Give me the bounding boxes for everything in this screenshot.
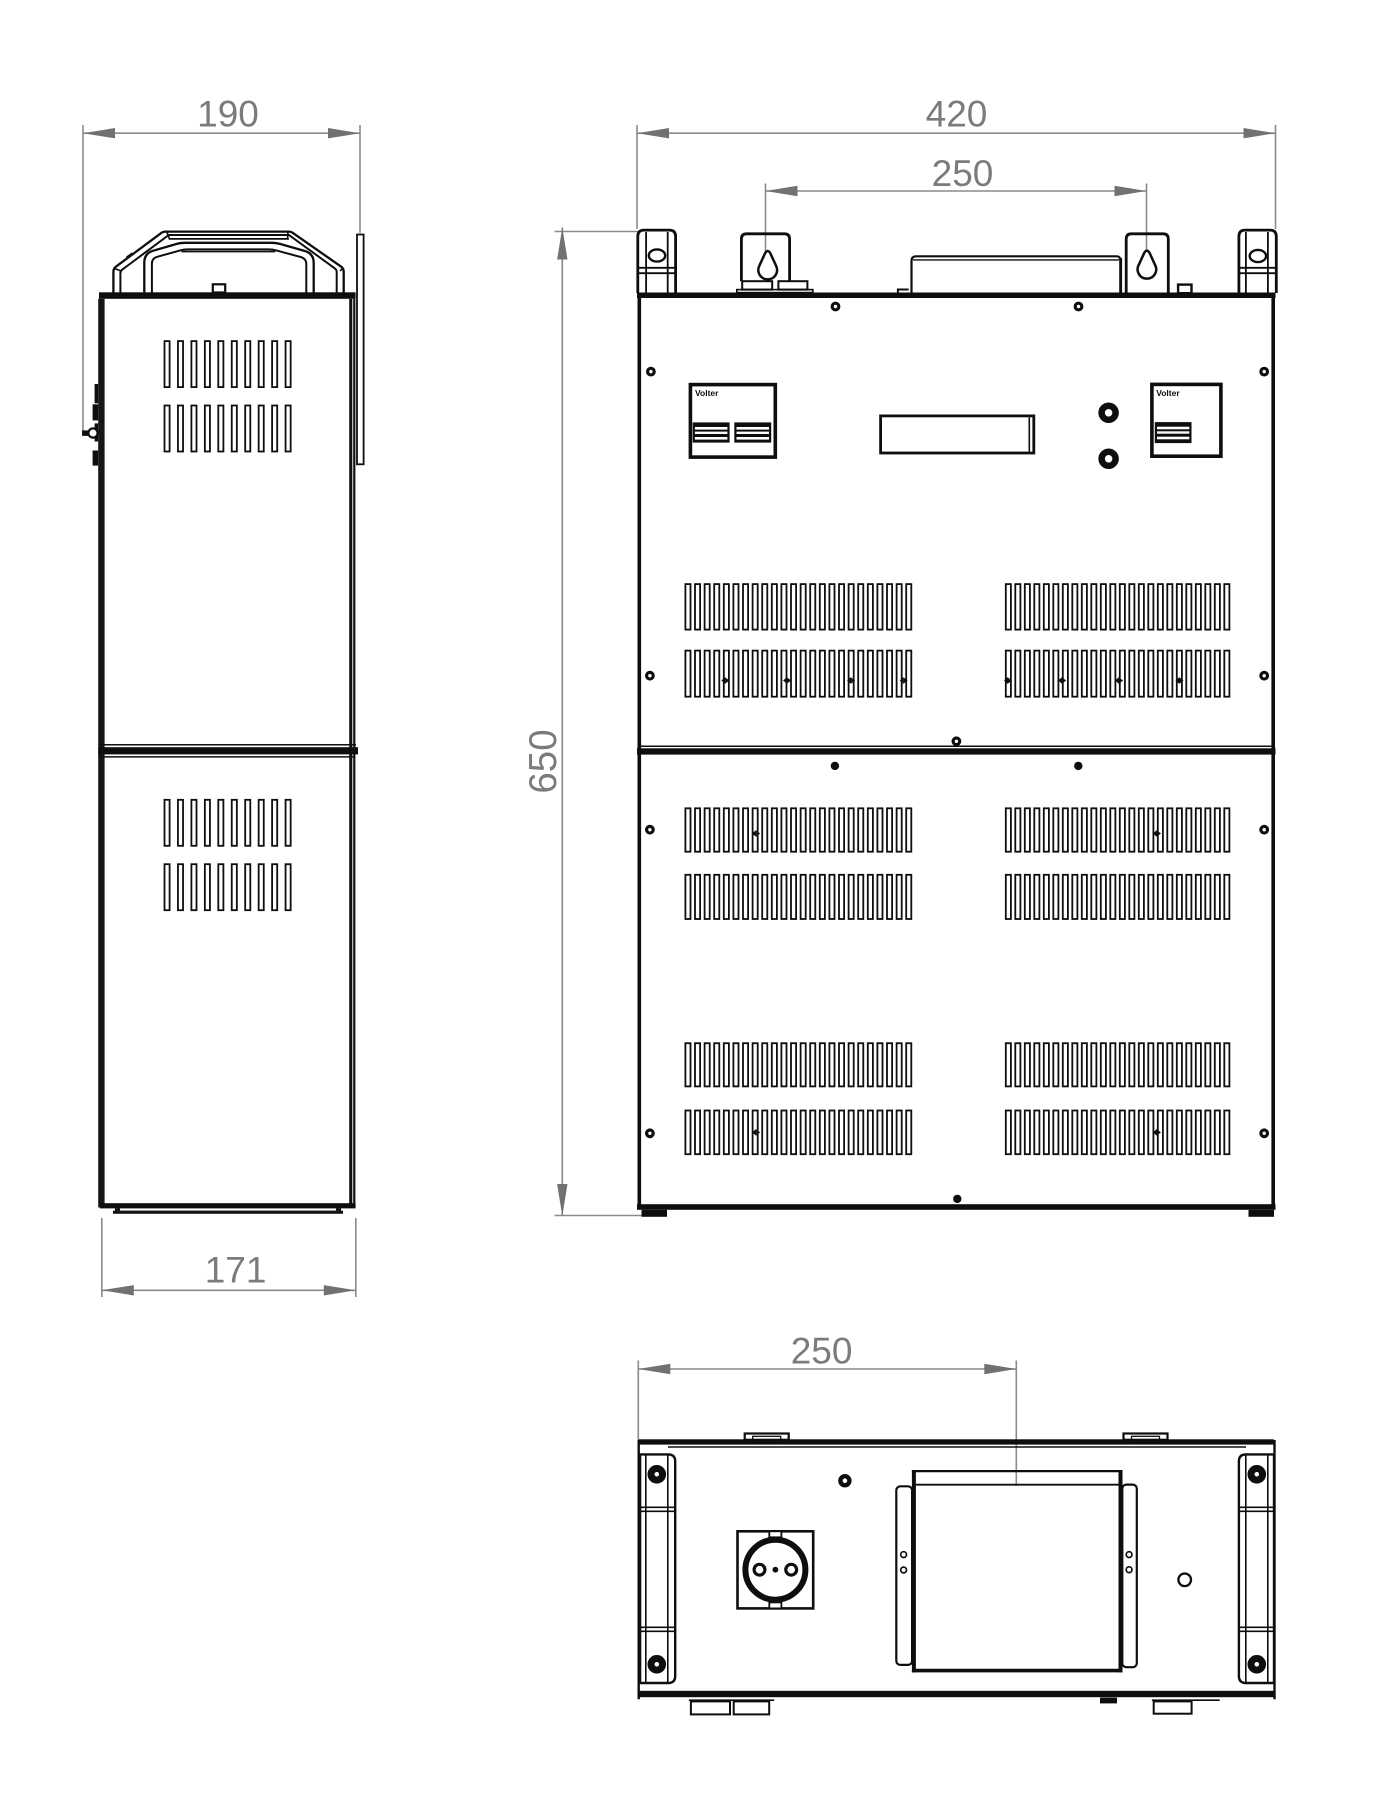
svg-text:171: 171 <box>205 1250 267 1291</box>
svg-text:Volter: Volter <box>695 388 719 398</box>
svg-text:190: 190 <box>197 94 259 135</box>
svg-text:420: 420 <box>926 94 988 135</box>
svg-text:250: 250 <box>791 1331 853 1372</box>
svg-text:250: 250 <box>932 153 994 194</box>
svg-text:Volter: Volter <box>1156 388 1180 398</box>
svg-text:650: 650 <box>522 729 565 793</box>
